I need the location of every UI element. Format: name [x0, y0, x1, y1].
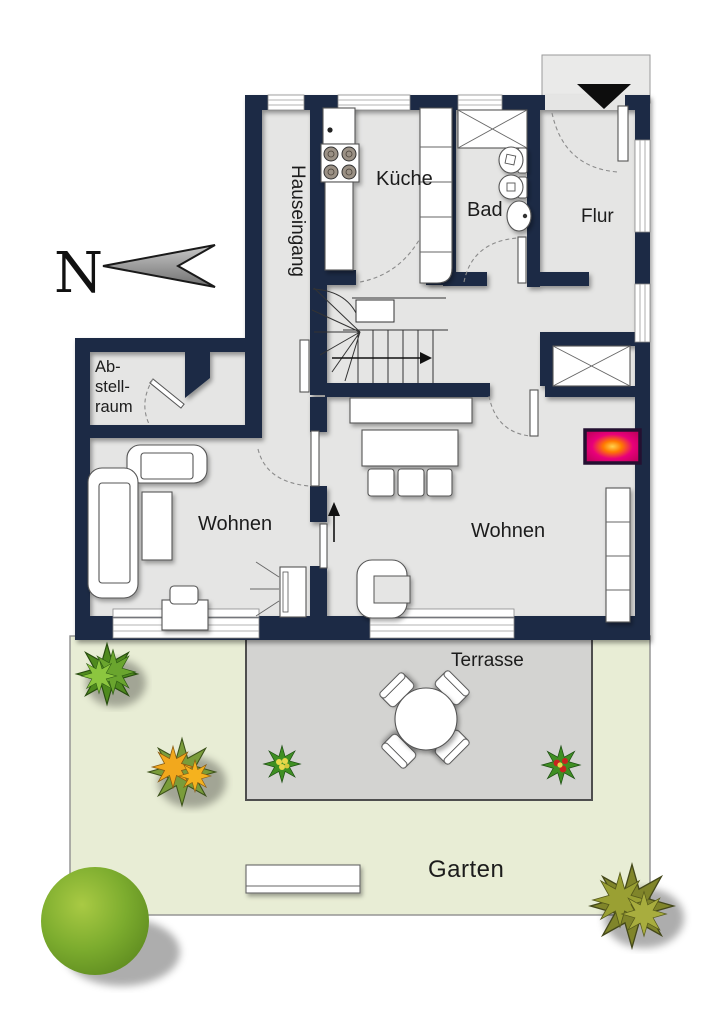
dining-chair: [427, 469, 452, 496]
fireplace: [585, 430, 640, 463]
toilet: [499, 147, 527, 173]
desk-chair: [170, 586, 198, 604]
terrace-area: Terrasse: [246, 628, 592, 800]
living-right-door-leaf: [530, 390, 538, 436]
north-arrow-icon: [103, 245, 215, 287]
floorplan-drawing: Garten Terrasse: [0, 0, 722, 1024]
flowerpot-yellow-icon: [264, 746, 301, 783]
terrasse-label: Terrasse: [451, 650, 524, 671]
floorplan-page: Garten Terrasse: [0, 0, 722, 1024]
kitchen-sink: [323, 108, 355, 144]
kitchen-counter: [325, 182, 353, 270]
compass: N: [54, 241, 215, 306]
window: [635, 284, 650, 342]
wohnen-left-label: Wohnen: [198, 513, 272, 535]
bath-sink: [507, 201, 531, 231]
window: [458, 95, 502, 110]
dining-chair: [368, 469, 394, 496]
living-left-door-leaf: [311, 431, 319, 486]
compass-letter: N: [54, 241, 103, 306]
terrace-table: [395, 688, 457, 750]
abstellraum-label-line3: raum: [95, 398, 133, 416]
shower: [458, 110, 527, 148]
stair-rail: [356, 300, 394, 322]
bad-label: Bad: [467, 199, 503, 221]
flowerpot-red-icon: [542, 746, 580, 784]
armchair-seat: [141, 453, 193, 479]
sideboard: [350, 398, 472, 423]
kueche-label: Küche: [376, 168, 433, 190]
garden-bench: [246, 865, 360, 893]
bidet: [499, 175, 527, 199]
sofa-seat: [99, 483, 130, 583]
hauseingang-label: Hauseingang: [287, 165, 308, 277]
hall-radiator: [300, 340, 309, 392]
garten-label: Garten: [428, 856, 504, 883]
window: [635, 140, 650, 232]
abstellraum-label-line1: Ab-: [95, 358, 121, 376]
abstellraum-label-line2: stell-: [95, 378, 130, 396]
wohnen-right-label: Wohnen: [471, 520, 545, 542]
dining-chair: [398, 469, 424, 496]
coffee-table: [142, 492, 172, 560]
dining-table: [362, 430, 458, 466]
tv-screen: [283, 572, 288, 612]
bath-door-leaf: [518, 237, 526, 283]
window: [268, 95, 304, 110]
lounge-armchair: [357, 560, 410, 618]
shelf-unit: [606, 488, 630, 622]
faucet-icon: [327, 127, 332, 132]
built-in-wardrobe: [553, 346, 630, 386]
flur-label: Flur: [581, 206, 614, 227]
entrance-door-leaf: [618, 106, 628, 161]
kitchen-cabinets: [420, 108, 452, 283]
